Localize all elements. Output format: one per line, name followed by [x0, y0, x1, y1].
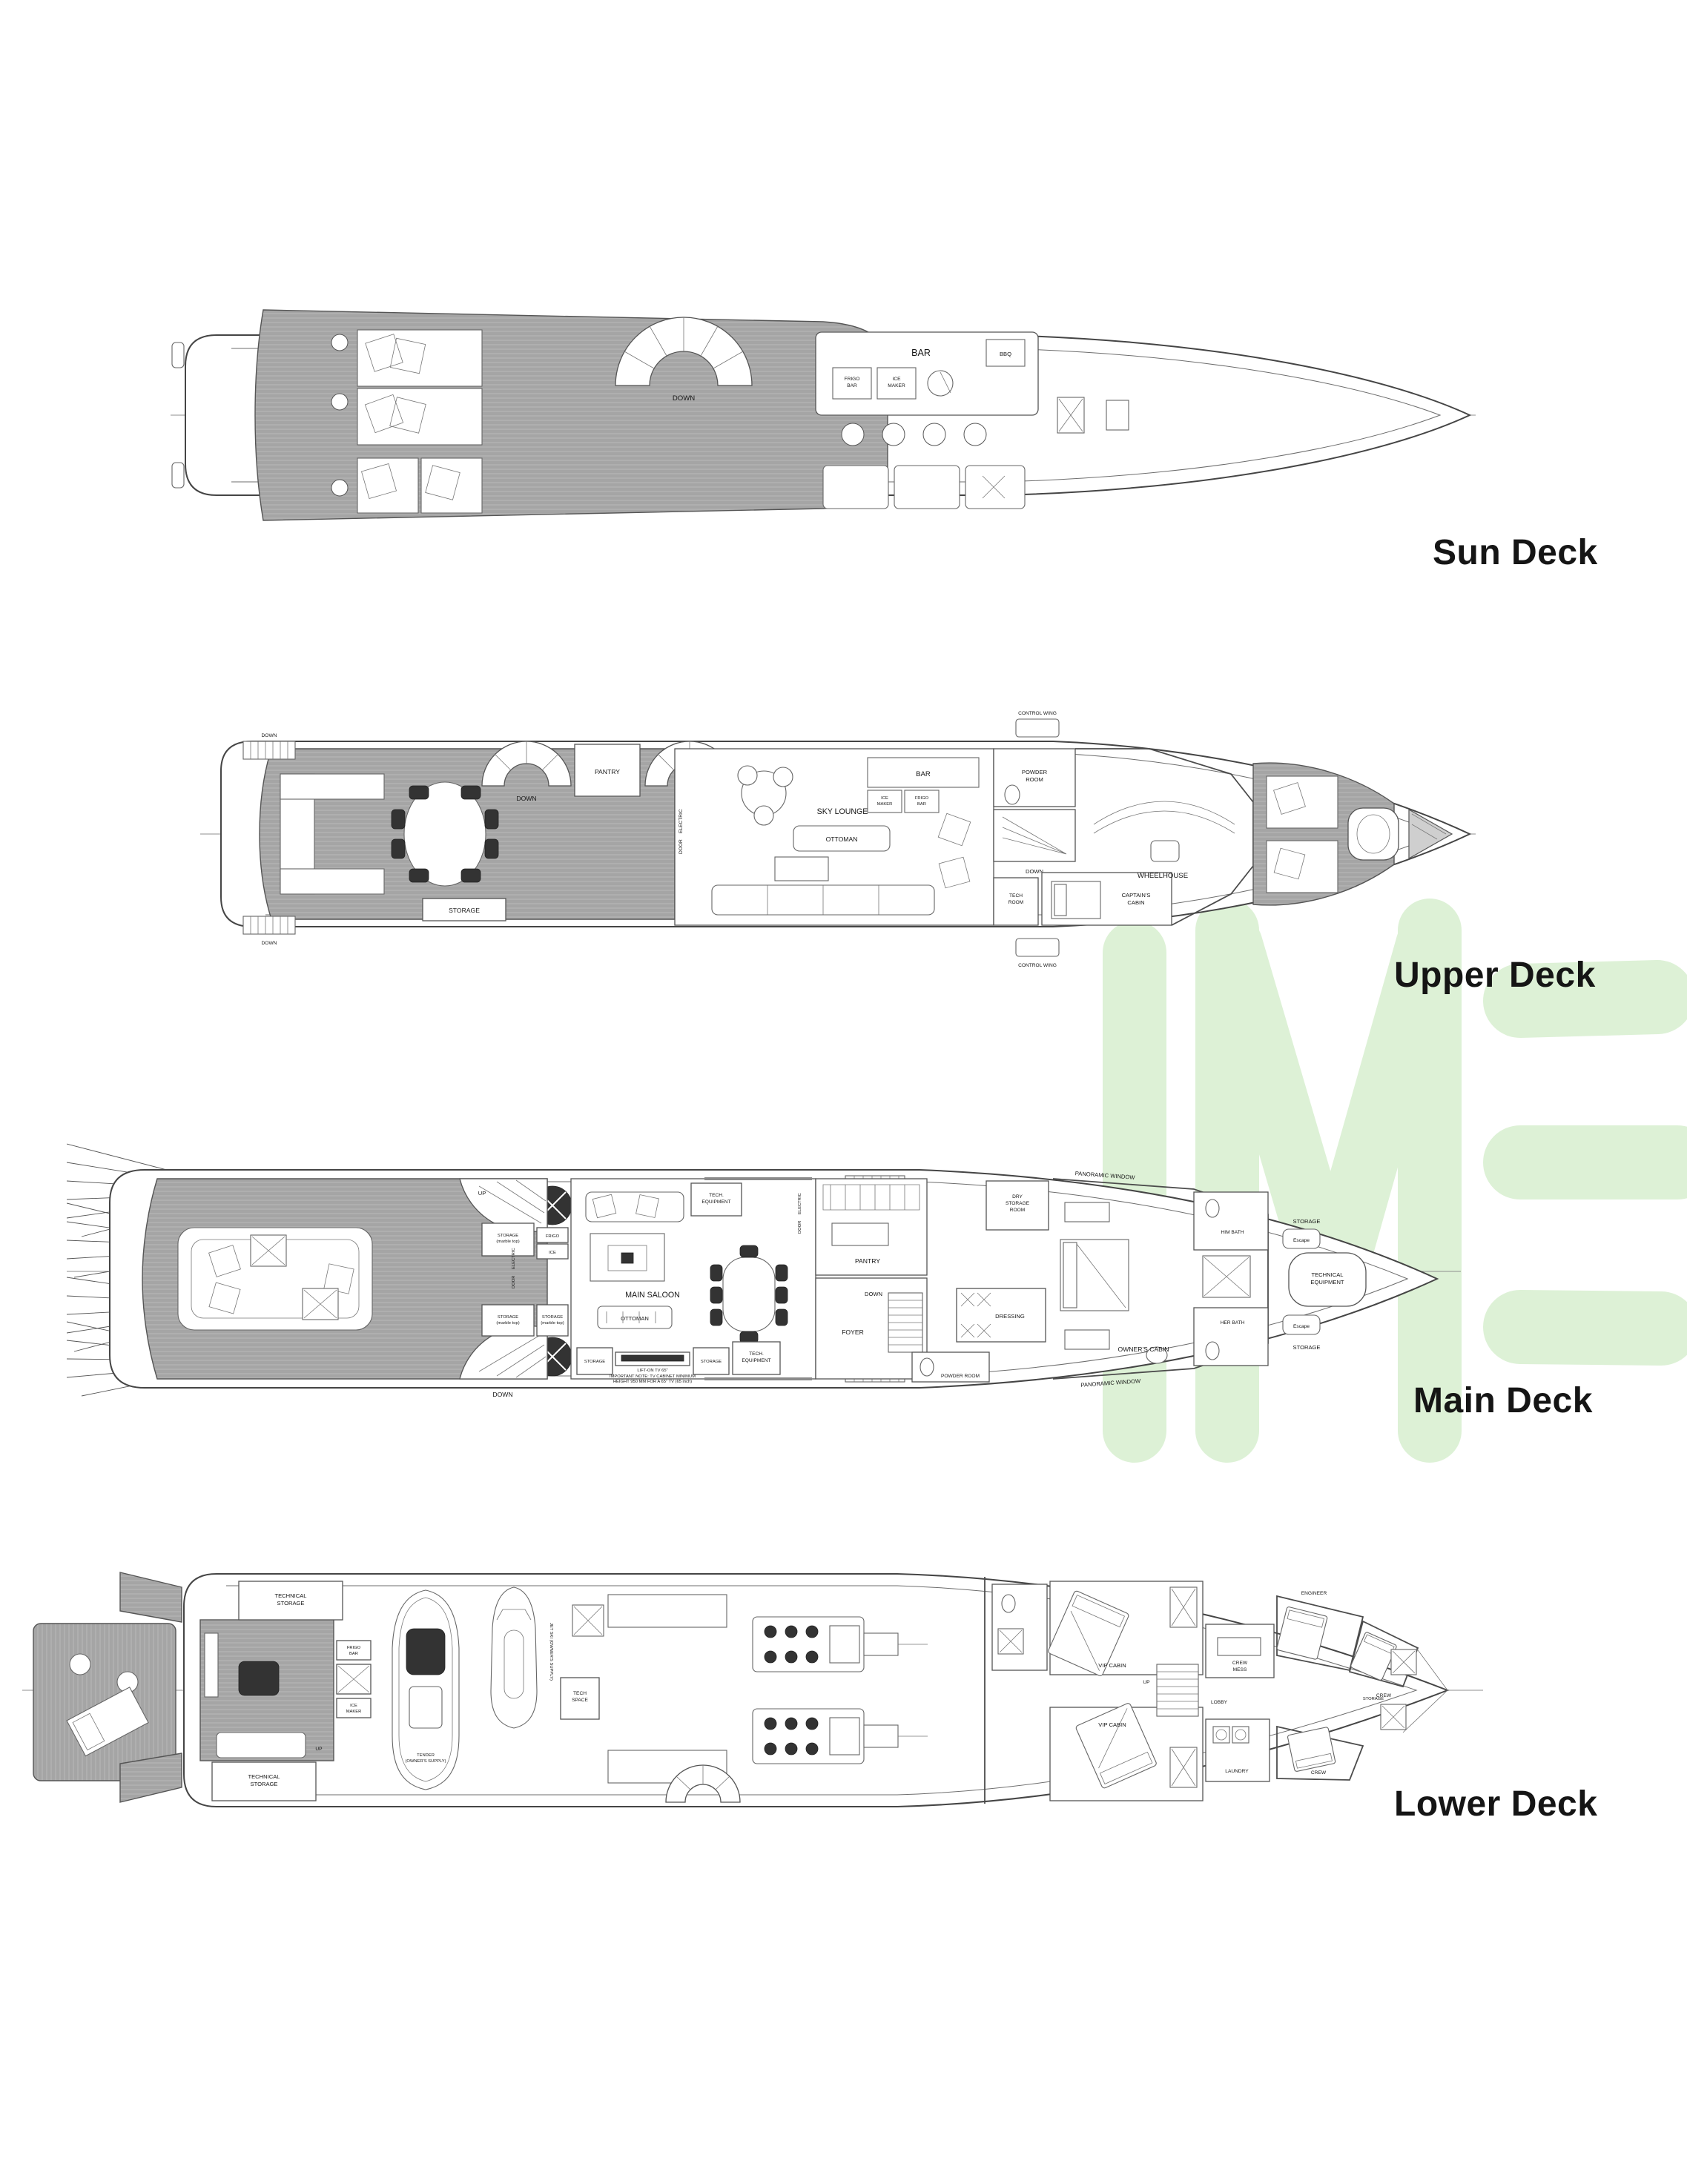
- svg-text:DOWN: DOWN: [262, 941, 277, 946]
- technical-equipment: TECHNICAL EQUIPMENT: [1289, 1253, 1366, 1306]
- down-label: DOWN: [673, 394, 695, 403]
- svg-text:STORAGE: STORAGE: [498, 1315, 518, 1320]
- tech-space: TECH SPACE: [561, 1678, 599, 1719]
- svg-text:VIP CABIN: VIP CABIN: [1098, 1721, 1126, 1728]
- foredeck: [1253, 763, 1452, 905]
- ottoman-label: OTTOMAN: [621, 1315, 649, 1322]
- down-label: DOWN: [865, 1291, 882, 1297]
- laundry: LAUNDRY: [1206, 1719, 1270, 1781]
- technical-equipment-label: TECHNICAL: [1311, 1271, 1343, 1278]
- svg-text:CREW: CREW: [1311, 1770, 1327, 1776]
- tv-panel: [205, 1633, 218, 1697]
- main-saloon-label: MAIN SALOON: [625, 1291, 680, 1300]
- foyer-label: FOYER: [842, 1328, 864, 1336]
- storage-label: STORAGE: [1363, 1697, 1384, 1701]
- bbq-label: BBQ: [1000, 351, 1011, 357]
- tv-note: IMPORTANT NOTE: TV CABINET MINIMUM: [610, 1374, 696, 1379]
- sun-deck-title: Sun Deck: [1433, 532, 1598, 573]
- down-label: DOWN: [1026, 868, 1043, 875]
- svg-text:EQUIPMENT: EQUIPMENT: [701, 1199, 730, 1205]
- ice-maker-label: ICE: [881, 796, 888, 801]
- dry-storage-room: DRY STORAGE ROOM: [986, 1181, 1049, 1230]
- laundry-label: LAUNDRY: [1225, 1769, 1249, 1774]
- dressing-label: DRESSING: [995, 1313, 1025, 1320]
- galley: PANTRY: [816, 1179, 927, 1275]
- club-sofa: [217, 1733, 306, 1758]
- sky-lounge: SKY LOUNGE BAR ICE MAKER FRIGO BAR OTTOM…: [675, 749, 994, 925]
- storage-label: STORAGE: [449, 907, 480, 914]
- her-bath: HER BATH: [1194, 1308, 1268, 1366]
- svg-text:MAKER: MAKER: [877, 802, 893, 807]
- coffee-table: [775, 857, 828, 881]
- ice-maker-label: ICE: [893, 377, 902, 382]
- technical-storage-aft-bottom: TECHNICAL STORAGE: [212, 1762, 316, 1801]
- svg-text:(marble top): (marble top): [496, 1321, 519, 1326]
- svg-text:MESS: MESS: [1233, 1667, 1247, 1672]
- yacht-deck-plans-page: DOWN BAR FRIGO BAR ICE MAKER BBQ: [0, 0, 1687, 2184]
- jet-ski-label: JET SKI (OWNER'S SUPPLY): [549, 1623, 553, 1681]
- jet-ski-graphic: [491, 1587, 537, 1728]
- tv-lift-label: LIFT-ON TV 65": [637, 1369, 667, 1373]
- svg-text:STORAGE: STORAGE: [542, 1315, 563, 1320]
- wheelhouse-label: WHEELHOUSE: [1138, 872, 1188, 880]
- electric-door-label: ELECTRIC: [512, 1248, 516, 1269]
- tech-room: TECH ROOM: [994, 878, 1038, 925]
- escape-label: Escape: [1293, 1238, 1310, 1243]
- svg-text:PANORAMIC WINDOW: PANORAMIC WINDOW: [1080, 1377, 1141, 1389]
- up-label: UP: [1143, 1680, 1150, 1685]
- down-label: DOWN: [516, 795, 536, 802]
- ice-maker-label: ICE: [549, 1251, 556, 1255]
- swim-platform: [33, 1624, 176, 1781]
- control-wing-starboard: CONTROL WING: [1016, 939, 1059, 968]
- svg-text:STORAGE: STORAGE: [277, 1600, 305, 1606]
- svg-text:ROOM: ROOM: [1010, 1208, 1026, 1213]
- fore-sun-pad: [1267, 841, 1338, 893]
- sun-deck-plan: DOWN BAR FRIGO BAR ICE MAKER BBQ: [171, 289, 1476, 541]
- tech-space-label: TECH: [573, 1691, 587, 1696]
- svg-text:(marble top): (marble top): [541, 1321, 564, 1326]
- svg-text:STORAGE: STORAGE: [1006, 1201, 1030, 1206]
- him-bath: HIM BATH: [1194, 1192, 1268, 1250]
- helm-seat: [1151, 841, 1179, 861]
- sun-deck-teak: [255, 310, 888, 520]
- electric-door-label: ELECTRIC: [679, 809, 684, 833]
- up-label: UP: [315, 1747, 323, 1752]
- bar-label: BAR: [916, 770, 931, 778]
- cabin-sofa: [1065, 1202, 1109, 1222]
- svg-text:ROOM: ROOM: [1008, 900, 1024, 905]
- svg-text:Escape: Escape: [1293, 1324, 1310, 1329]
- frigo-bar-label: FRIGO: [915, 796, 929, 801]
- crew-cabin-starboard: CREW: [1277, 1727, 1363, 1780]
- svg-text:(OWNER'S SUPPLY): (OWNER'S SUPPLY): [405, 1759, 446, 1764]
- svg-text:HEIGHT 950 MM FOR A 65" TV (65: HEIGHT 950 MM FOR A 65" TV (65 inch): [613, 1380, 692, 1384]
- captains-cabin: CAPTAIN'S CABIN: [1042, 873, 1172, 925]
- owners-cabin-label: OWNER'S CABIN: [1118, 1346, 1169, 1353]
- svg-text:STORAGE: STORAGE: [251, 1781, 278, 1787]
- him-bath-label: HIM BATH: [1221, 1230, 1244, 1235]
- crew-mess: CREW MESS: [1206, 1624, 1274, 1678]
- svg-text:PANORAMIC WINDOW: PANORAMIC WINDOW: [1075, 1170, 1136, 1181]
- frigo-bar-label: FRIGO: [546, 1234, 560, 1239]
- powder-room: POWDER ROOM: [994, 749, 1075, 807]
- tech-equipment-label: TECH.: [709, 1193, 724, 1198]
- powder-room-label: POWDER: [1022, 769, 1048, 775]
- vip-bath-port: [992, 1584, 1047, 1670]
- svg-text:DOOR: DOOR: [512, 1276, 516, 1288]
- svg-text:EQUIPMENT: EQUIPMENT: [1310, 1279, 1344, 1285]
- svg-text:TECHNICAL: TECHNICAL: [248, 1773, 280, 1780]
- lower-deck-title: Lower Deck: [1394, 1784, 1597, 1824]
- upper-deck-title: Upper Deck: [1394, 955, 1596, 996]
- bar-label: BAR: [911, 348, 931, 358]
- captains-cabin-label: CAPTAIN'S: [1122, 892, 1151, 899]
- svg-text:CABIN: CABIN: [1127, 899, 1144, 906]
- svg-text:UP: UP: [478, 1190, 486, 1197]
- sky-lounge-label: SKY LOUNGE: [817, 807, 868, 816]
- storage-label: STORAGE: [584, 1360, 605, 1364]
- sink-icon: [928, 371, 953, 396]
- frigo-bar-label: FRIGO: [845, 377, 860, 382]
- control-wing-label: CONTROL WING: [1018, 711, 1057, 716]
- fold-down-bulwark: [120, 1572, 182, 1622]
- powder-room: POWDER ROOM: [912, 1352, 989, 1382]
- control-wing-label: CONTROL WING: [1018, 963, 1057, 968]
- pantry-label: PANTRY: [595, 768, 620, 775]
- vip-cabin-port: VIP CABIN: [1048, 1581, 1203, 1677]
- svg-text:(marble top): (marble top): [496, 1240, 519, 1244]
- svg-text:TECH.: TECH.: [749, 1351, 764, 1357]
- crew-mess-label: CREW: [1232, 1661, 1248, 1666]
- tender-label: TENDER: [417, 1753, 435, 1758]
- svg-text:EQUIPMENT: EQUIPMENT: [742, 1358, 770, 1363]
- svg-text:ELECTRIC: ELECTRIC: [798, 1193, 802, 1214]
- storage-label: STORAGE: [1293, 1218, 1321, 1225]
- technical-storage-aft-top: TECHNICAL STORAGE: [239, 1581, 343, 1620]
- dry-storage-label: DRY: [1012, 1194, 1023, 1199]
- svg-text:STORAGE: STORAGE: [701, 1360, 722, 1364]
- svg-text:DOOR: DOOR: [679, 839, 684, 854]
- stern-step: [172, 343, 184, 368]
- lobby-label: LOBBY: [1211, 1700, 1228, 1705]
- main-saloon: TECH. EQUIPMENT MAIN SALOON OTTOMAN STOR…: [571, 1179, 816, 1384]
- stern-sofa: [178, 1228, 372, 1330]
- svg-text:BAR: BAR: [349, 1652, 358, 1656]
- upper-deck-plan: CONTROL WING CONTROL WING STORAGE: [200, 706, 1476, 970]
- control-wing-port: CONTROL WING: [1016, 711, 1059, 737]
- down-label: DOWN: [492, 1391, 512, 1398]
- svg-text:STORAGE: STORAGE: [1293, 1344, 1321, 1351]
- side-stair-starboard: DOWN: [243, 916, 295, 946]
- svg-text:ROOM: ROOM: [1026, 776, 1043, 783]
- club-table: [239, 1661, 279, 1695]
- foyer-stairs: DOWN FOYER: [816, 1278, 927, 1379]
- vip-cabin-label: VIP CABIN: [1098, 1662, 1126, 1669]
- side-stair-port: DOWN: [243, 733, 295, 759]
- dressing-room: DRESSING: [957, 1288, 1046, 1342]
- watermark-letter-e: [1520, 997, 1677, 1328]
- powder-room-label: POWDER ROOM: [941, 1374, 980, 1379]
- svg-text:DOWN: DOWN: [262, 733, 277, 738]
- svg-text:DOOR: DOOR: [798, 1221, 802, 1234]
- stern-step: [172, 463, 184, 488]
- aft-seating: [823, 466, 1025, 509]
- ottoman-label: OTTOMAN: [826, 835, 858, 843]
- ice-maker-label: ICE: [350, 1704, 357, 1708]
- svg-text:MAKER: MAKER: [346, 1710, 362, 1714]
- vip-cabin-starboard: VIP CABIN: [1050, 1702, 1203, 1801]
- pantry-label: PANTRY: [855, 1257, 880, 1265]
- main-deck-title: Main Deck: [1413, 1380, 1593, 1421]
- tender-windshield: [406, 1629, 445, 1675]
- tech-room-label: TECH: [1009, 893, 1023, 899]
- storage-marble-label: STORAGE: [498, 1234, 518, 1238]
- workbench: [608, 1595, 727, 1627]
- tender-graphic: TENDER (OWNER'S SUPPLY): [392, 1590, 459, 1790]
- svg-text:BAR: BAR: [847, 383, 857, 388]
- svg-text:SPACE: SPACE: [572, 1698, 588, 1703]
- spa-pool: [1348, 808, 1399, 860]
- svg-text:BAR: BAR: [917, 802, 926, 807]
- frigo-bar-label: FRIGO: [347, 1646, 361, 1650]
- her-bath-label: HER BATH: [1221, 1320, 1245, 1326]
- main-deck-plan: UP DOWN STORAGE (marble top) FRIGO ICE E…: [67, 1140, 1461, 1417]
- svg-text:MAKER: MAKER: [888, 383, 905, 388]
- lower-deck-plan: FRIGO BAR ICE MAKER UP TECHNICAL STORAGE…: [22, 1552, 1483, 1823]
- engineer-label: ENGINEER: [1301, 1591, 1327, 1596]
- technical-storage-label: TECHNICAL: [274, 1592, 306, 1599]
